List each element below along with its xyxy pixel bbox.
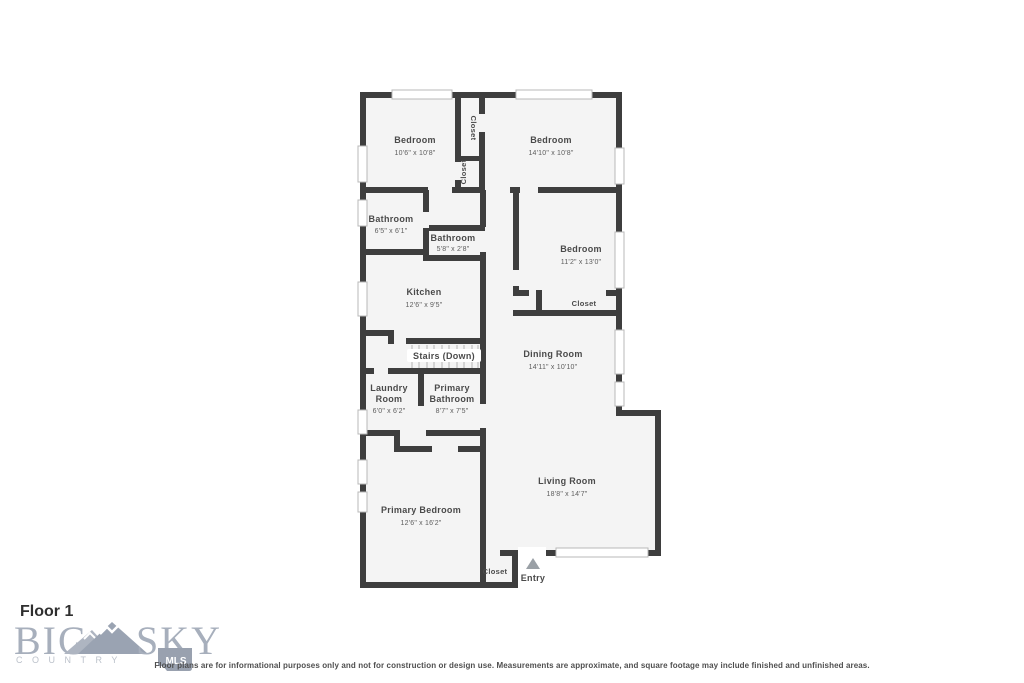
closet-entry-label: Closet <box>483 567 508 576</box>
room-dims-bedroom-top-left: 10'6" x 10'8" <box>395 150 436 157</box>
closet-bedroom-right-label: Closet <box>572 299 597 308</box>
closet-upper-label: Closet <box>469 116 478 141</box>
room-label-kitchen: Kitchen <box>406 287 441 297</box>
logo-tagline: COUNTRY <box>16 655 127 665</box>
room-dims-laundry: 6'0" x 6'2" <box>373 408 406 415</box>
room-label-primary-bathroom-line2: Bathroom <box>430 394 475 404</box>
room-label-living: Living Room <box>538 476 596 486</box>
room-dims-dining: 14'11" x 10'10" <box>529 364 578 371</box>
closet-middle-label: Closet <box>459 159 468 184</box>
room-label-primary-bathroom-line1: Primary <box>434 383 470 393</box>
room-dims-bathroom-hall: 6'5" x 6'1" <box>375 228 408 235</box>
room-dims-bedroom-right: 11'2" x 13'0" <box>561 259 602 266</box>
room-label-laundry-line1: Laundry <box>370 383 408 393</box>
room-label-bathroom-hall: Bathroom <box>369 214 414 224</box>
entry-arrow-icon <box>526 558 540 569</box>
room-label-primary-bedroom: Primary Bedroom <box>381 505 461 515</box>
room-dims-kitchen: 12'6" x 9'5" <box>406 302 443 309</box>
room-dims-living: 18'8" x 14'7" <box>547 491 588 498</box>
entry-label: Entry <box>521 573 546 583</box>
room-label-bedroom-right: Bedroom <box>560 244 602 254</box>
disclaimer-text: Floor plans are for informational purpos… <box>154 661 869 670</box>
room-dims-primary-bedroom: 12'6" x 16'2" <box>401 520 442 527</box>
floor-plan-page: Bedroom 10'6" x 10'8" Bedroom 14'10" x 1… <box>0 0 1024 683</box>
room-label-laundry-line2: Room <box>376 394 403 404</box>
stairs-label: Stairs (Down) <box>413 351 475 361</box>
room-label-bedroom-top-left: Bedroom <box>394 135 436 145</box>
floor-plan-canvas: Bedroom 10'6" x 10'8" Bedroom 14'10" x 1… <box>0 0 1024 683</box>
entry-door-gap <box>518 547 546 559</box>
room-label-bathroom-small: Bathroom <box>431 233 476 243</box>
room-label-dining: Dining Room <box>523 349 582 359</box>
room-dims-primary-bathroom: 8'7" x 7'5" <box>436 408 469 415</box>
room-label-bedroom-top-right: Bedroom <box>530 135 572 145</box>
room-dims-bedroom-top-right: 14'10" x 10'8" <box>528 150 573 157</box>
room-dims-bathroom-small: 5'8" x 2'8" <box>437 246 470 253</box>
